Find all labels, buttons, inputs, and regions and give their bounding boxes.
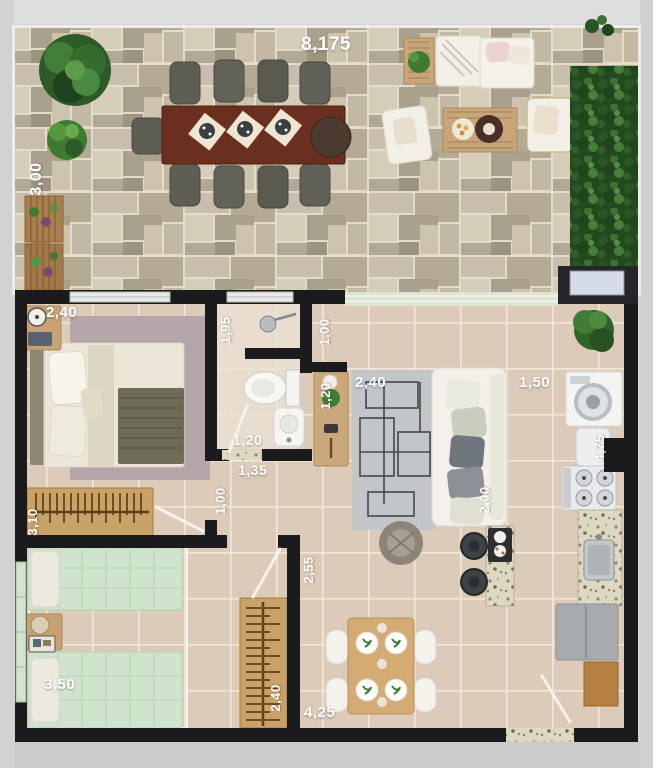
outdoor-coffee-table bbox=[443, 108, 517, 152]
sofa bbox=[432, 368, 506, 526]
dining-chair bbox=[326, 630, 348, 664]
wardrobe-bedroom1 bbox=[27, 488, 153, 536]
dimension-label-console-length: 1,20 bbox=[317, 373, 335, 419]
dimension-label-bedroom1-length: 3,10 bbox=[24, 499, 42, 545]
glass-panel bbox=[570, 271, 624, 295]
pouf bbox=[379, 521, 423, 565]
dimension-label-bedroom1-width: 2,40 bbox=[46, 304, 77, 322]
shower-head bbox=[260, 316, 276, 332]
washing-machine bbox=[566, 372, 622, 426]
kitchen-cabinet bbox=[584, 662, 618, 706]
dining-chair bbox=[414, 630, 436, 664]
dimension-label-terrace-width: 8,175 bbox=[301, 36, 351, 54]
outdoor-sofa bbox=[480, 38, 534, 88]
dimension-label-hall-width: 1,35 bbox=[238, 461, 267, 479]
outdoor-armchair-left bbox=[381, 105, 432, 165]
dining-chair bbox=[414, 678, 436, 712]
dimension-label-terrace-depth: 3,00 bbox=[28, 156, 46, 202]
single-bed-top bbox=[28, 548, 182, 610]
dimension-label-living-rug-width: 2,40 bbox=[355, 374, 386, 392]
dimension-label-closet-length: 2,40 bbox=[267, 675, 285, 721]
outdoor-armchair-right bbox=[527, 98, 573, 152]
terrace-plant-small bbox=[47, 120, 87, 160]
dimension-label-bedroom2-width: 3,50 bbox=[44, 676, 75, 694]
entry-threshold bbox=[506, 728, 574, 742]
nightstand-bedroom2 bbox=[26, 614, 62, 652]
refrigerator bbox=[556, 604, 618, 660]
dimension-label-bathroom-width: 1,20 bbox=[233, 431, 262, 449]
place-mats bbox=[188, 109, 302, 151]
terrace-sliding-door bbox=[345, 292, 558, 306]
stove bbox=[562, 466, 616, 510]
bedroom2-window bbox=[16, 562, 26, 702]
dimension-label-dining-length: 2,55 bbox=[300, 547, 318, 593]
side-table-with-plant bbox=[404, 38, 434, 84]
double-bed bbox=[30, 343, 184, 467]
floor-plan: 8,175 3,00 2,40 1,95 1,00 1,20 2,40 1,50… bbox=[0, 0, 653, 768]
toilet bbox=[244, 370, 300, 406]
bathroom-window bbox=[227, 292, 293, 302]
dimension-label-bathroom-depth: 1,95 bbox=[217, 307, 235, 353]
terrace-plant-large bbox=[39, 34, 111, 106]
bedroom1-window bbox=[70, 292, 170, 302]
living-rug bbox=[352, 370, 436, 530]
dimension-label-dining-width: 4,25 bbox=[304, 704, 335, 722]
dimension-label-kitchen-width: 1,50 bbox=[519, 374, 550, 392]
outdoor-daybed bbox=[436, 36, 482, 86]
dimension-label-kitchen-length: 4,75 bbox=[591, 425, 609, 471]
counter-with-sink bbox=[578, 510, 622, 606]
dimension-label-hall-length: 1,00 bbox=[212, 478, 230, 524]
bathroom-sink bbox=[274, 408, 304, 446]
dimension-label-nook-width: 1,00 bbox=[316, 309, 334, 355]
round-side-table bbox=[311, 117, 351, 157]
dimension-label-sofa-length: 2,00 bbox=[476, 477, 494, 523]
